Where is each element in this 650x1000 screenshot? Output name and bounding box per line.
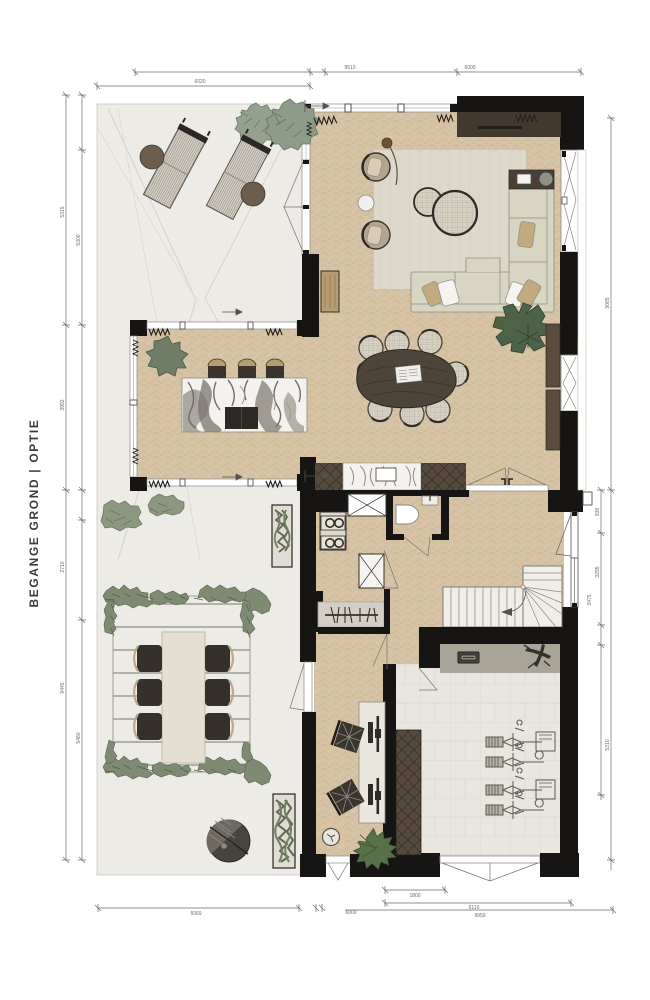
svg-text:9085: 9085 — [605, 297, 611, 308]
svg-text:3992: 3992 — [60, 399, 66, 410]
svg-text:6000: 6000 — [345, 910, 356, 916]
svg-text:3475: 3475 — [587, 594, 593, 605]
svg-text:6110: 6110 — [469, 905, 480, 911]
svg-text:2710: 2710 — [60, 561, 66, 572]
svg-text:1800: 1800 — [409, 893, 420, 899]
svg-text:5310: 5310 — [605, 739, 611, 750]
svg-text:6020: 6020 — [194, 79, 205, 85]
svg-text:5300: 5300 — [76, 234, 82, 245]
svg-text:5315: 5315 — [60, 206, 66, 217]
svg-text:5069: 5069 — [190, 911, 201, 917]
svg-text:3295: 3295 — [595, 566, 601, 577]
svg-text:9445: 9445 — [60, 682, 66, 693]
svg-text:9510: 9510 — [344, 65, 355, 71]
svg-text:6000: 6000 — [464, 65, 475, 71]
svg-text:5480: 5480 — [76, 732, 82, 743]
svg-text:938: 938 — [595, 508, 601, 517]
svg-text:9959: 9959 — [474, 913, 485, 919]
